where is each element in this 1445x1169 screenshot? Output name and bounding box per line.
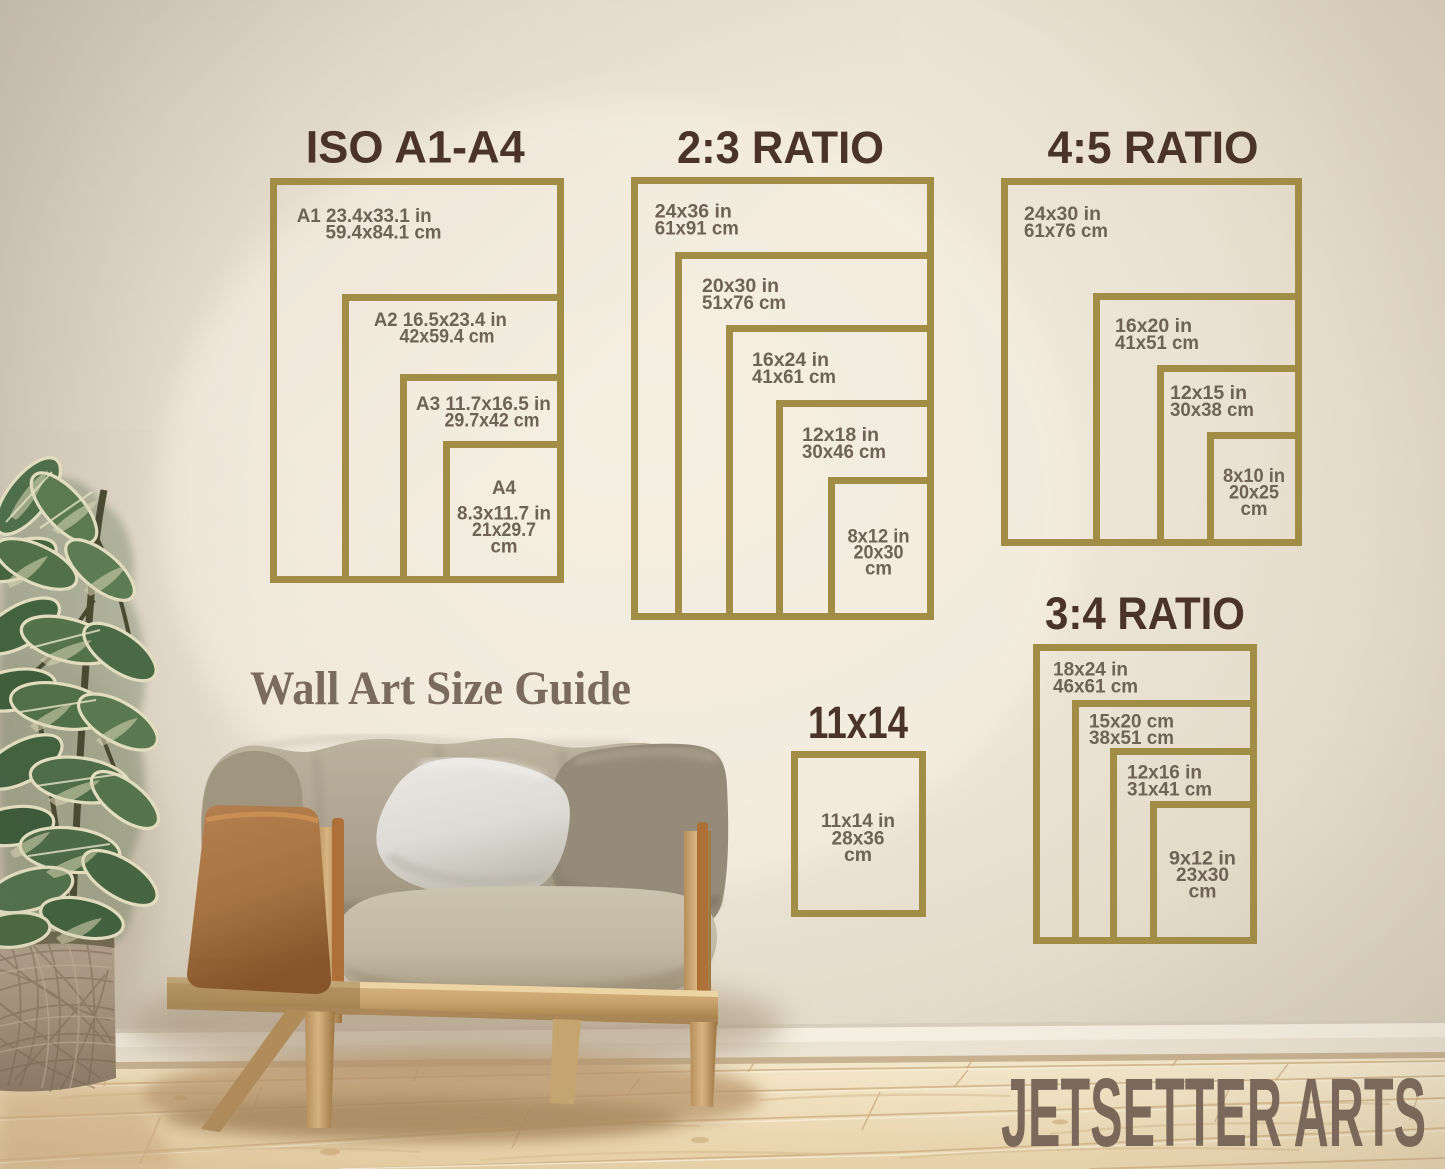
svg-text:JETSETTER ARTS: JETSETTER ARTS: [1001, 1058, 1426, 1167]
